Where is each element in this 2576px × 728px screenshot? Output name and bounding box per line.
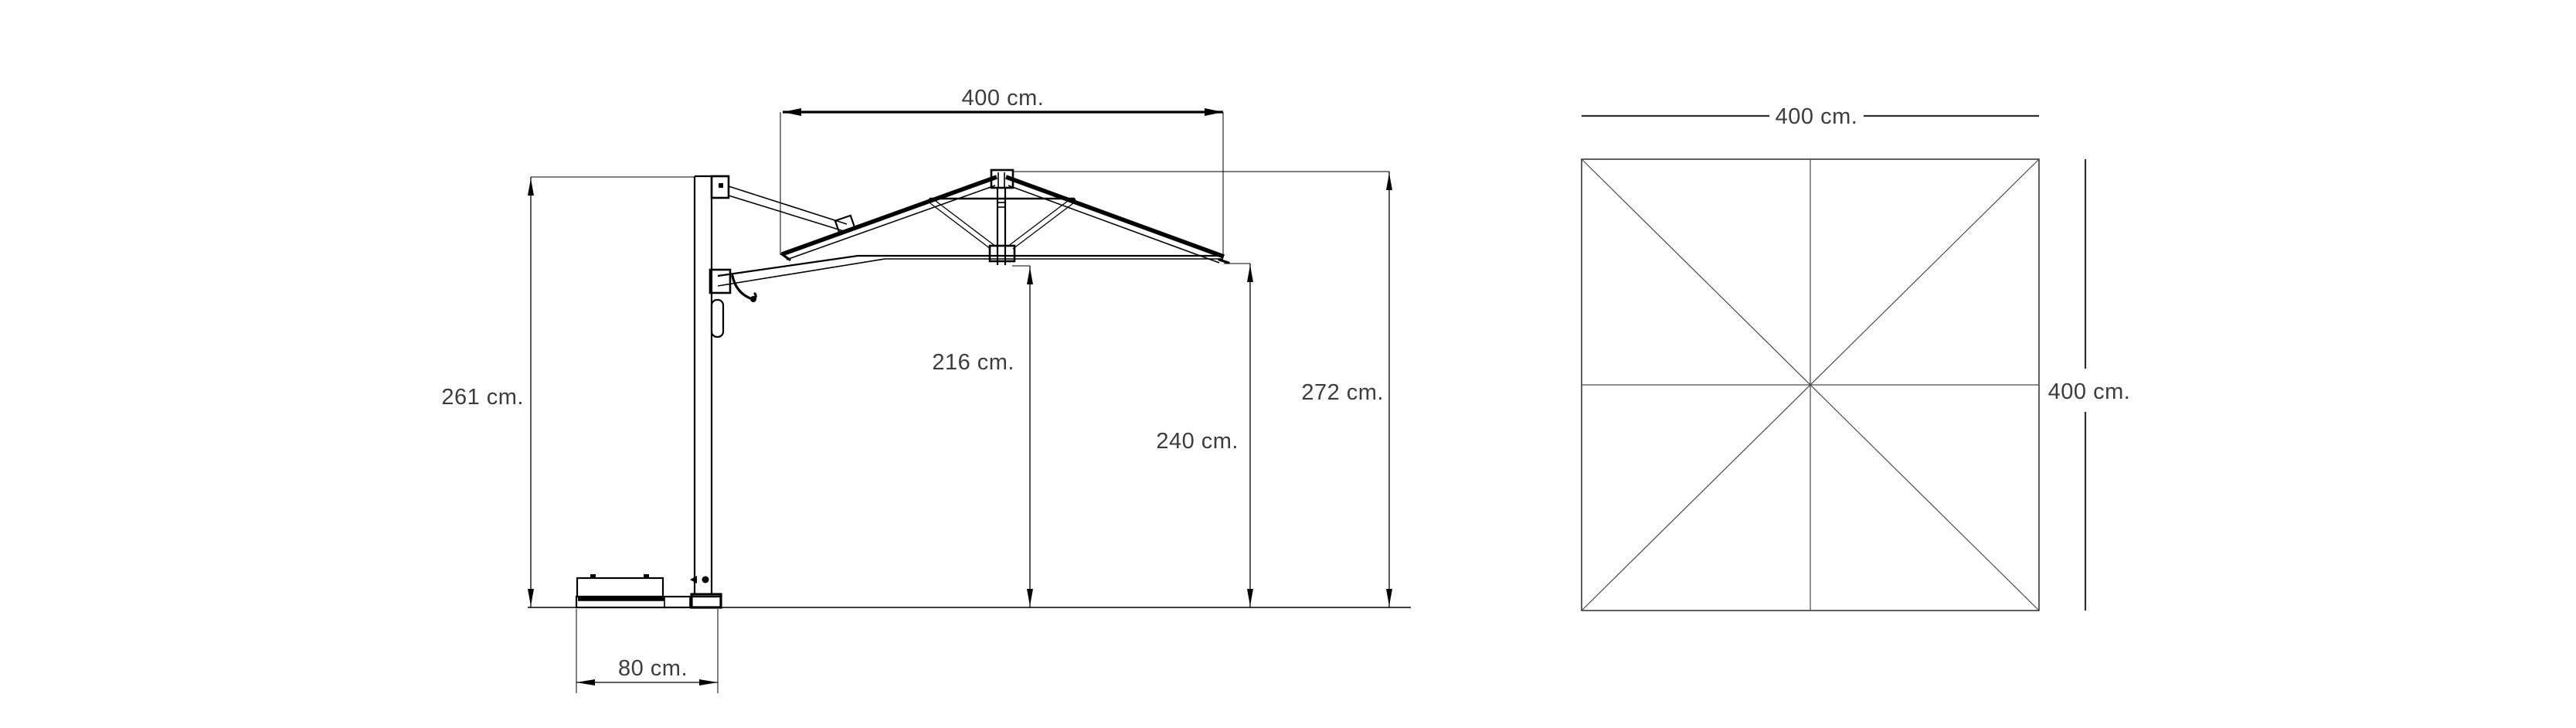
cantilever-arm — [718, 256, 1223, 286]
pole-height-label: 261 cm. — [441, 385, 524, 410]
dim-clearance-height: 216 cm. — [932, 266, 1033, 607]
dim-pole-height: 261 cm. — [441, 177, 695, 607]
stretcher-struts — [930, 201, 1073, 249]
dim-plan-depth: 400 cm. — [2048, 159, 2131, 611]
top-view: 400 cm. 400 cm. — [1582, 104, 2130, 611]
dim-edge-height: 240 cm. — [1156, 264, 1253, 607]
canopy — [782, 170, 1229, 265]
counterweight-box — [577, 578, 663, 597]
plan-depth-label: 400 cm. — [2048, 379, 2131, 404]
base-assembly — [576, 574, 721, 607]
total-height-label: 272 cm. — [1301, 380, 1384, 405]
canopy-outline — [1582, 159, 2039, 611]
canopy-width-label: 400 cm. — [962, 86, 1045, 111]
upper-support-link — [729, 186, 855, 233]
edge-height-label: 240 cm. — [1156, 429, 1239, 454]
umbrella-pole — [695, 176, 729, 595]
clearance-height-label: 216 cm. — [932, 350, 1014, 375]
pole-top-bracket — [712, 176, 729, 198]
umbrella-dimension-drawing: 400 cm. 261 cm. 216 cm. 240 cm. — [0, 0, 2576, 728]
pole-handle — [712, 300, 723, 337]
side-view: 400 cm. 261 cm. 216 cm. 240 cm. — [441, 86, 1411, 693]
dim-plan-width: 400 cm. — [1582, 104, 2039, 129]
pole-lower-bracket — [710, 270, 756, 337]
drawing-canvas: 400 cm. 261 cm. 216 cm. 240 cm. — [0, 0, 2576, 728]
dim-base-length: 80 cm. — [576, 609, 718, 693]
plan-width-label: 400 cm. — [1776, 104, 1858, 129]
dim-total-height: 272 cm. — [1013, 172, 1392, 607]
base-length-label: 80 cm. — [618, 656, 688, 681]
crank-handle — [732, 276, 756, 299]
